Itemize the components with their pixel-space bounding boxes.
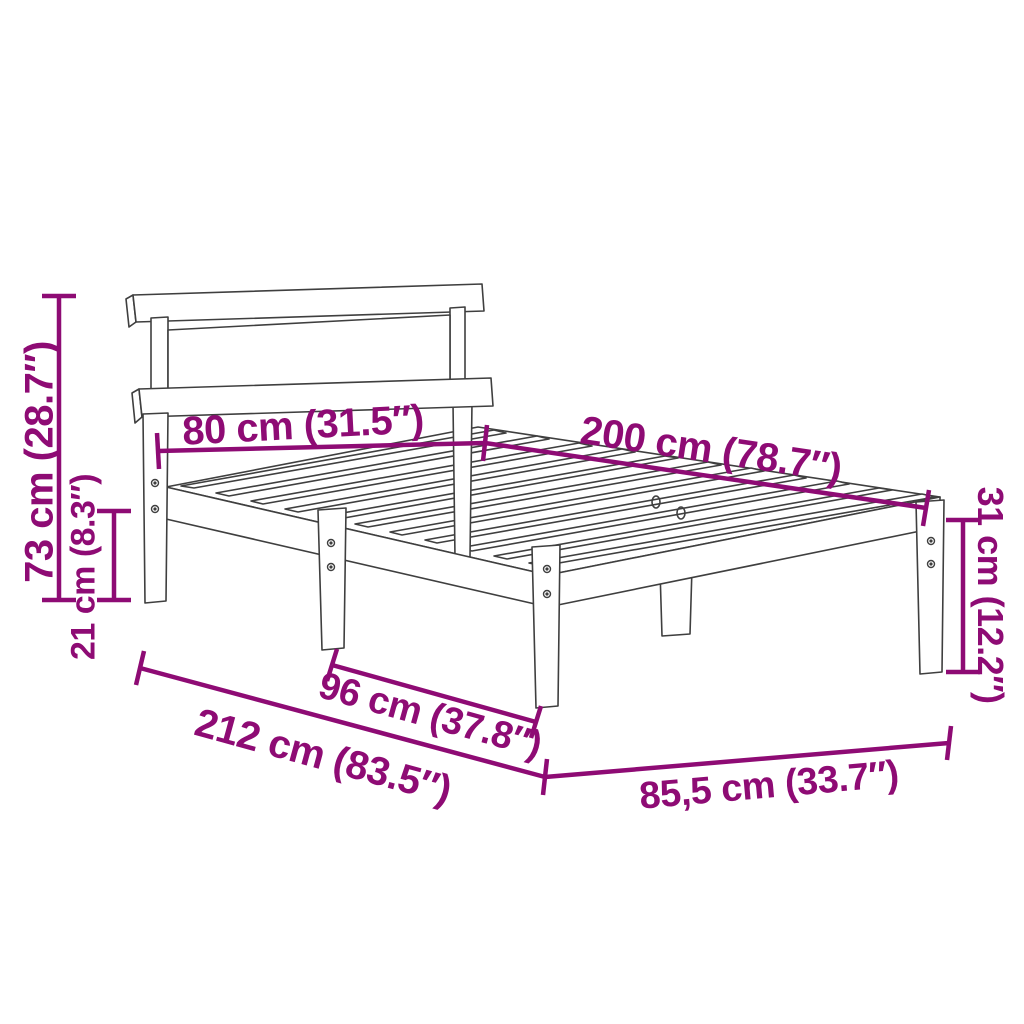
bed-frame-drawing	[0, 0, 1024, 1024]
dimension-label-underbed-clearance: 21 cm (8.3″)	[65, 474, 104, 660]
dimension-label-frame-height: 31 cm (12.2″)	[969, 487, 1011, 704]
headboard-rear-post	[453, 402, 472, 558]
headboard-right-stile	[450, 307, 465, 384]
bed-frame	[126, 284, 944, 708]
dimension-diagram: 73 cm (28.7″) 21 cm (8.3″) 80 cm (31.5″)…	[0, 0, 1024, 1024]
front-middle-leg	[318, 508, 346, 650]
rear-foot-leg	[916, 500, 944, 674]
dimension-label-headboard-height: 73 cm (28.7″)	[18, 341, 63, 583]
